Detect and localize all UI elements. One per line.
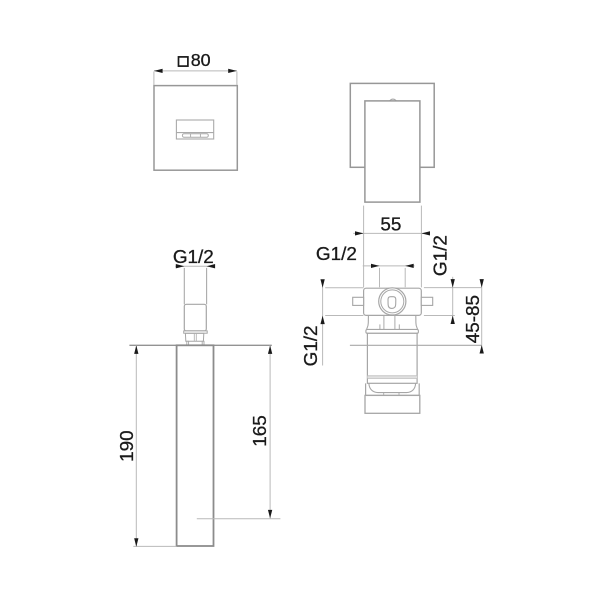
svg-text:G1/2: G1/2: [173, 247, 214, 268]
svg-text:190: 190: [117, 430, 138, 462]
svg-text:G1/2: G1/2: [316, 244, 357, 265]
svg-text:165: 165: [250, 415, 271, 447]
svg-text:G1/2: G1/2: [301, 325, 322, 366]
svg-text:G1/2: G1/2: [430, 235, 451, 276]
svg-text:80: 80: [191, 50, 211, 70]
svg-text:45-85: 45-85: [463, 295, 484, 343]
svg-text:55: 55: [380, 214, 401, 235]
